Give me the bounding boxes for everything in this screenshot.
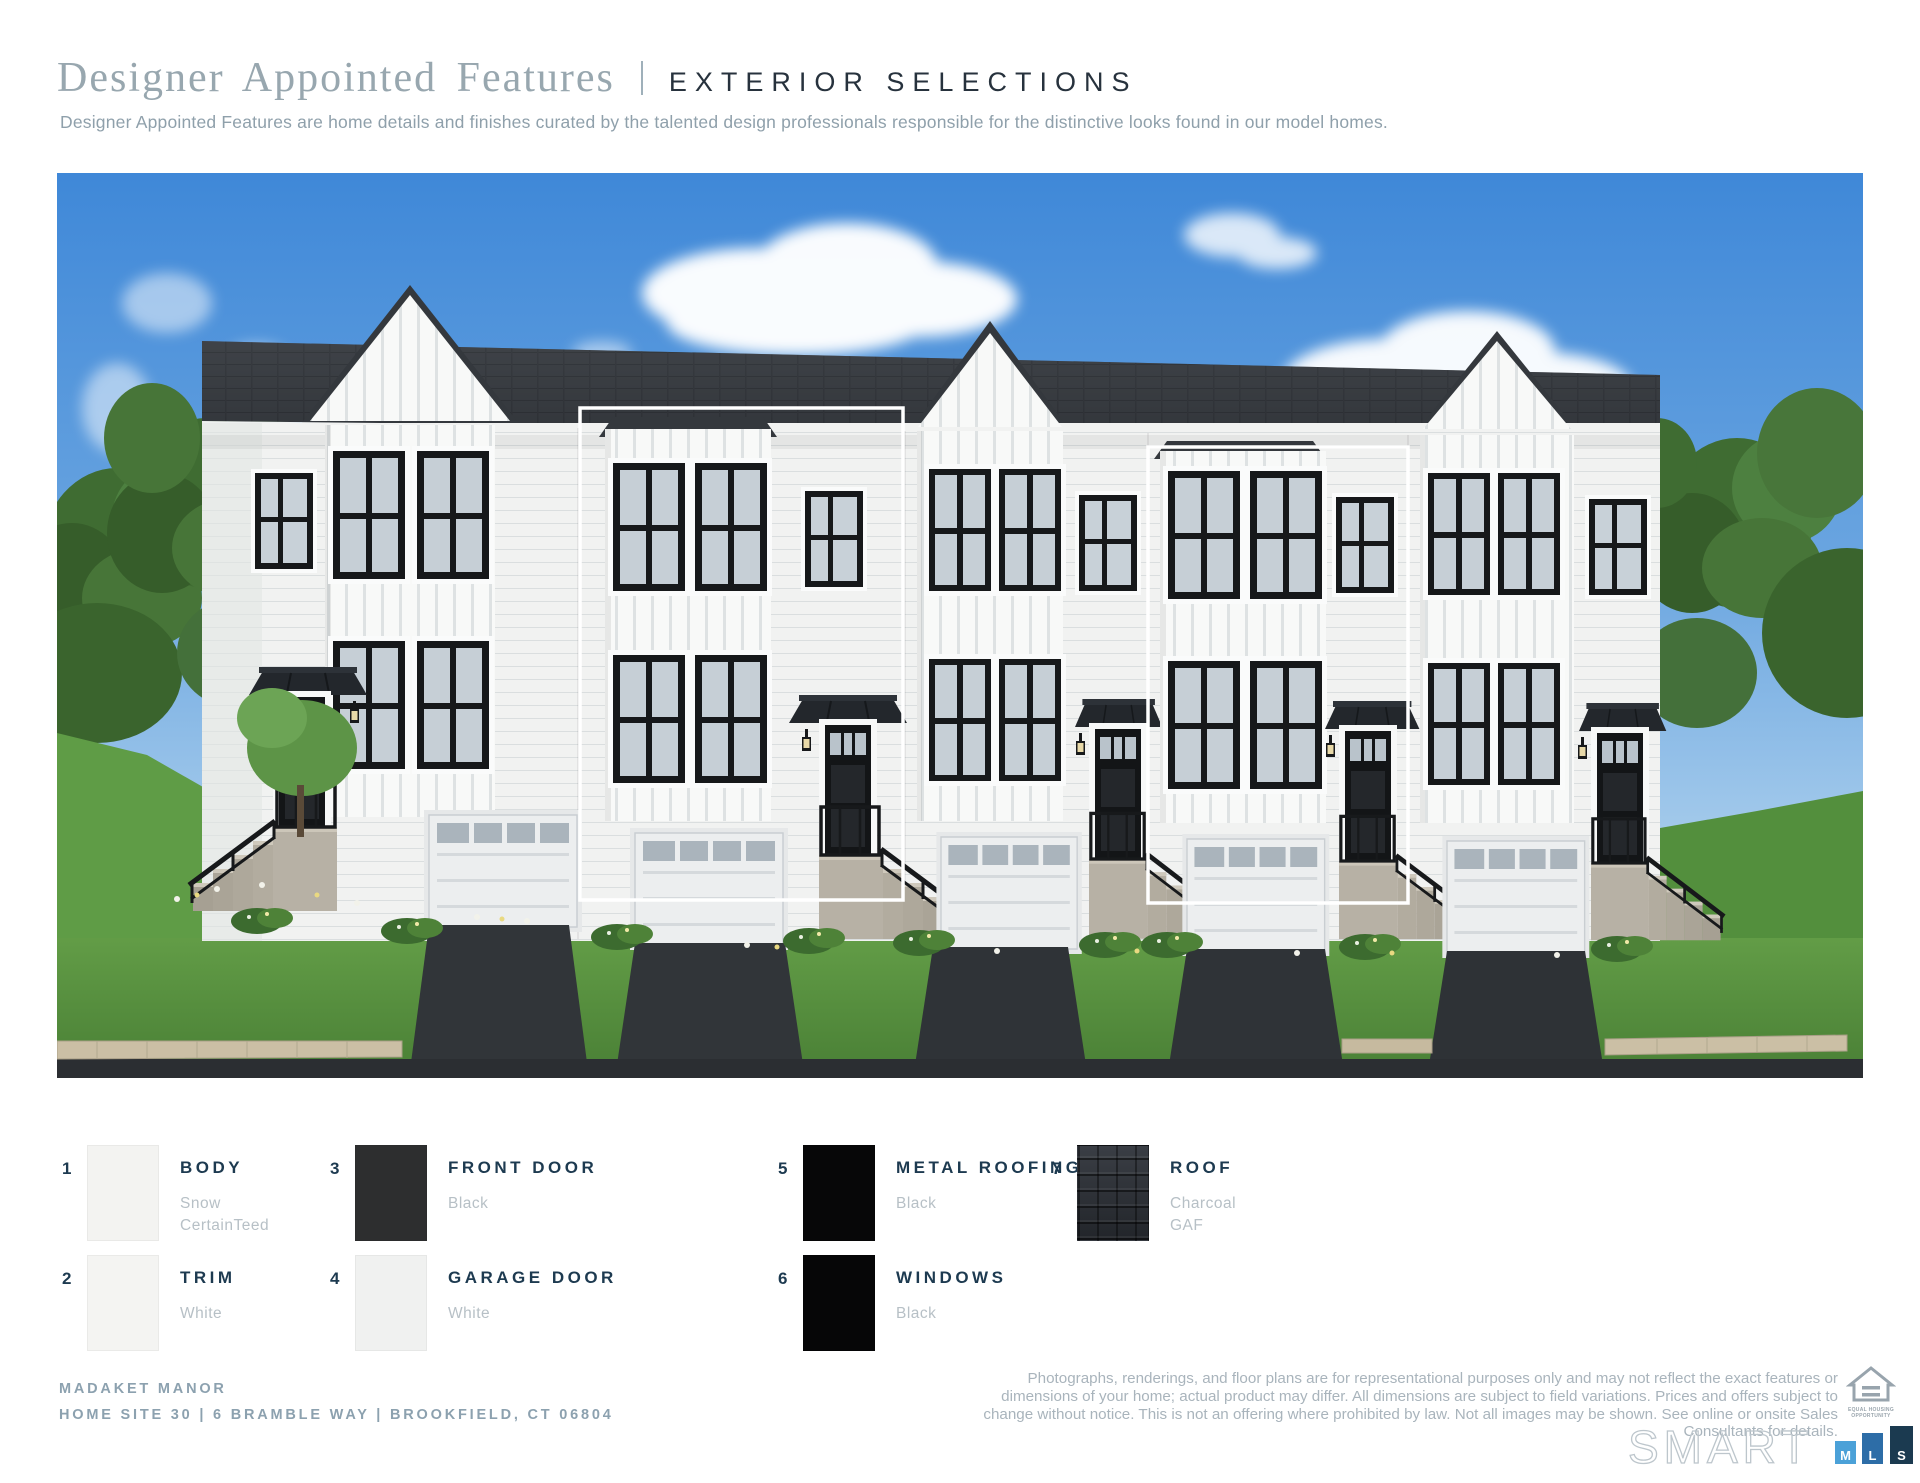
legend-item-windows: 6 WINDOWS Black <box>778 1255 1078 1365</box>
home-site-address: HOME SITE 30 | 6 BRAMBLE WAY | BROOKFIEL… <box>59 1407 614 1423</box>
exterior-rendering-photo <box>57 173 1863 1078</box>
equal-housing-icon <box>1846 1366 1896 1402</box>
legend-label: TRIM <box>180 1268 236 1288</box>
legend-number: 6 <box>778 1269 787 1289</box>
legend-sub: White <box>180 1303 222 1325</box>
mls-letter-l: L <box>1869 1448 1877 1463</box>
legend-number: 2 <box>62 1269 71 1289</box>
page-title: Designer Appointed Features <box>57 54 615 102</box>
swatch-body <box>87 1145 159 1241</box>
smart-mls-wordmark: SMART M L S <box>1628 1424 1920 1470</box>
page: { "header": { "title": "Designer Appoint… <box>0 0 1920 1483</box>
legend-item-front-door: 3 FRONT DOOR Black <box>330 1145 630 1255</box>
mls-letter-m: M <box>1840 1448 1851 1463</box>
legend-sub: Black <box>448 1193 488 1215</box>
legend-sub: SnowCertainTeed <box>180 1193 269 1237</box>
swatch-front-door <box>355 1145 427 1241</box>
legend-number: 1 <box>62 1159 71 1179</box>
townhomes-illustration <box>57 173 1863 1078</box>
legend-item-metal-roofing: 5 METAL ROOFING Black <box>778 1145 1078 1255</box>
smart-mls-logo: SMART M L S <box>1628 1424 1920 1470</box>
legend-number: 4 <box>330 1269 339 1289</box>
equal-housing-label: EQUAL HOUSINGOPPORTUNITY <box>1843 1407 1899 1419</box>
swatch-metal-roofing <box>803 1145 875 1241</box>
legend-number: 3 <box>330 1159 339 1179</box>
section-title: EXTERIOR SELECTIONS <box>669 67 1138 98</box>
subtitle: Designer Appointed Features are home det… <box>60 112 1388 133</box>
mls-letter-s: S <box>1897 1448 1906 1463</box>
legend-item-roof: 7 ROOF CharcoalGAF <box>1052 1145 1352 1255</box>
legend-sub: Black <box>896 1303 936 1325</box>
legend-number: 7 <box>1052 1159 1061 1179</box>
legend-label: BODY <box>180 1158 243 1178</box>
legend-label: WINDOWS <box>896 1268 1006 1288</box>
legend-label: GARAGE DOOR <box>448 1268 617 1288</box>
header: Designer Appointed Features EXTERIOR SEL… <box>57 54 1137 102</box>
legend-item-trim: 2 TRIM White <box>62 1255 362 1365</box>
swatch-garage-door <box>355 1255 427 1351</box>
legend-sub: Black <box>896 1193 936 1215</box>
legend-label: FRONT DOOR <box>448 1158 597 1178</box>
smart-outline-text: SMART <box>1628 1424 1813 1470</box>
legend-sub: CharcoalGAF <box>1170 1193 1236 1237</box>
swatch-windows <box>803 1255 875 1351</box>
legend-sub: White <box>448 1303 490 1325</box>
swatch-roof <box>1077 1145 1149 1241</box>
legend-label: ROOF <box>1170 1158 1233 1178</box>
swatch-trim <box>87 1255 159 1351</box>
community-name: MADAKET MANOR <box>59 1381 227 1397</box>
legend-item-garage-door: 4 GARAGE DOOR White <box>330 1255 630 1365</box>
equal-housing-logo: EQUAL HOUSINGOPPORTUNITY <box>1843 1366 1899 1419</box>
legend-item-body: 1 BODY SnowCertainTeed <box>62 1145 362 1255</box>
title-divider <box>641 61 643 95</box>
legend-number: 5 <box>778 1159 787 1179</box>
